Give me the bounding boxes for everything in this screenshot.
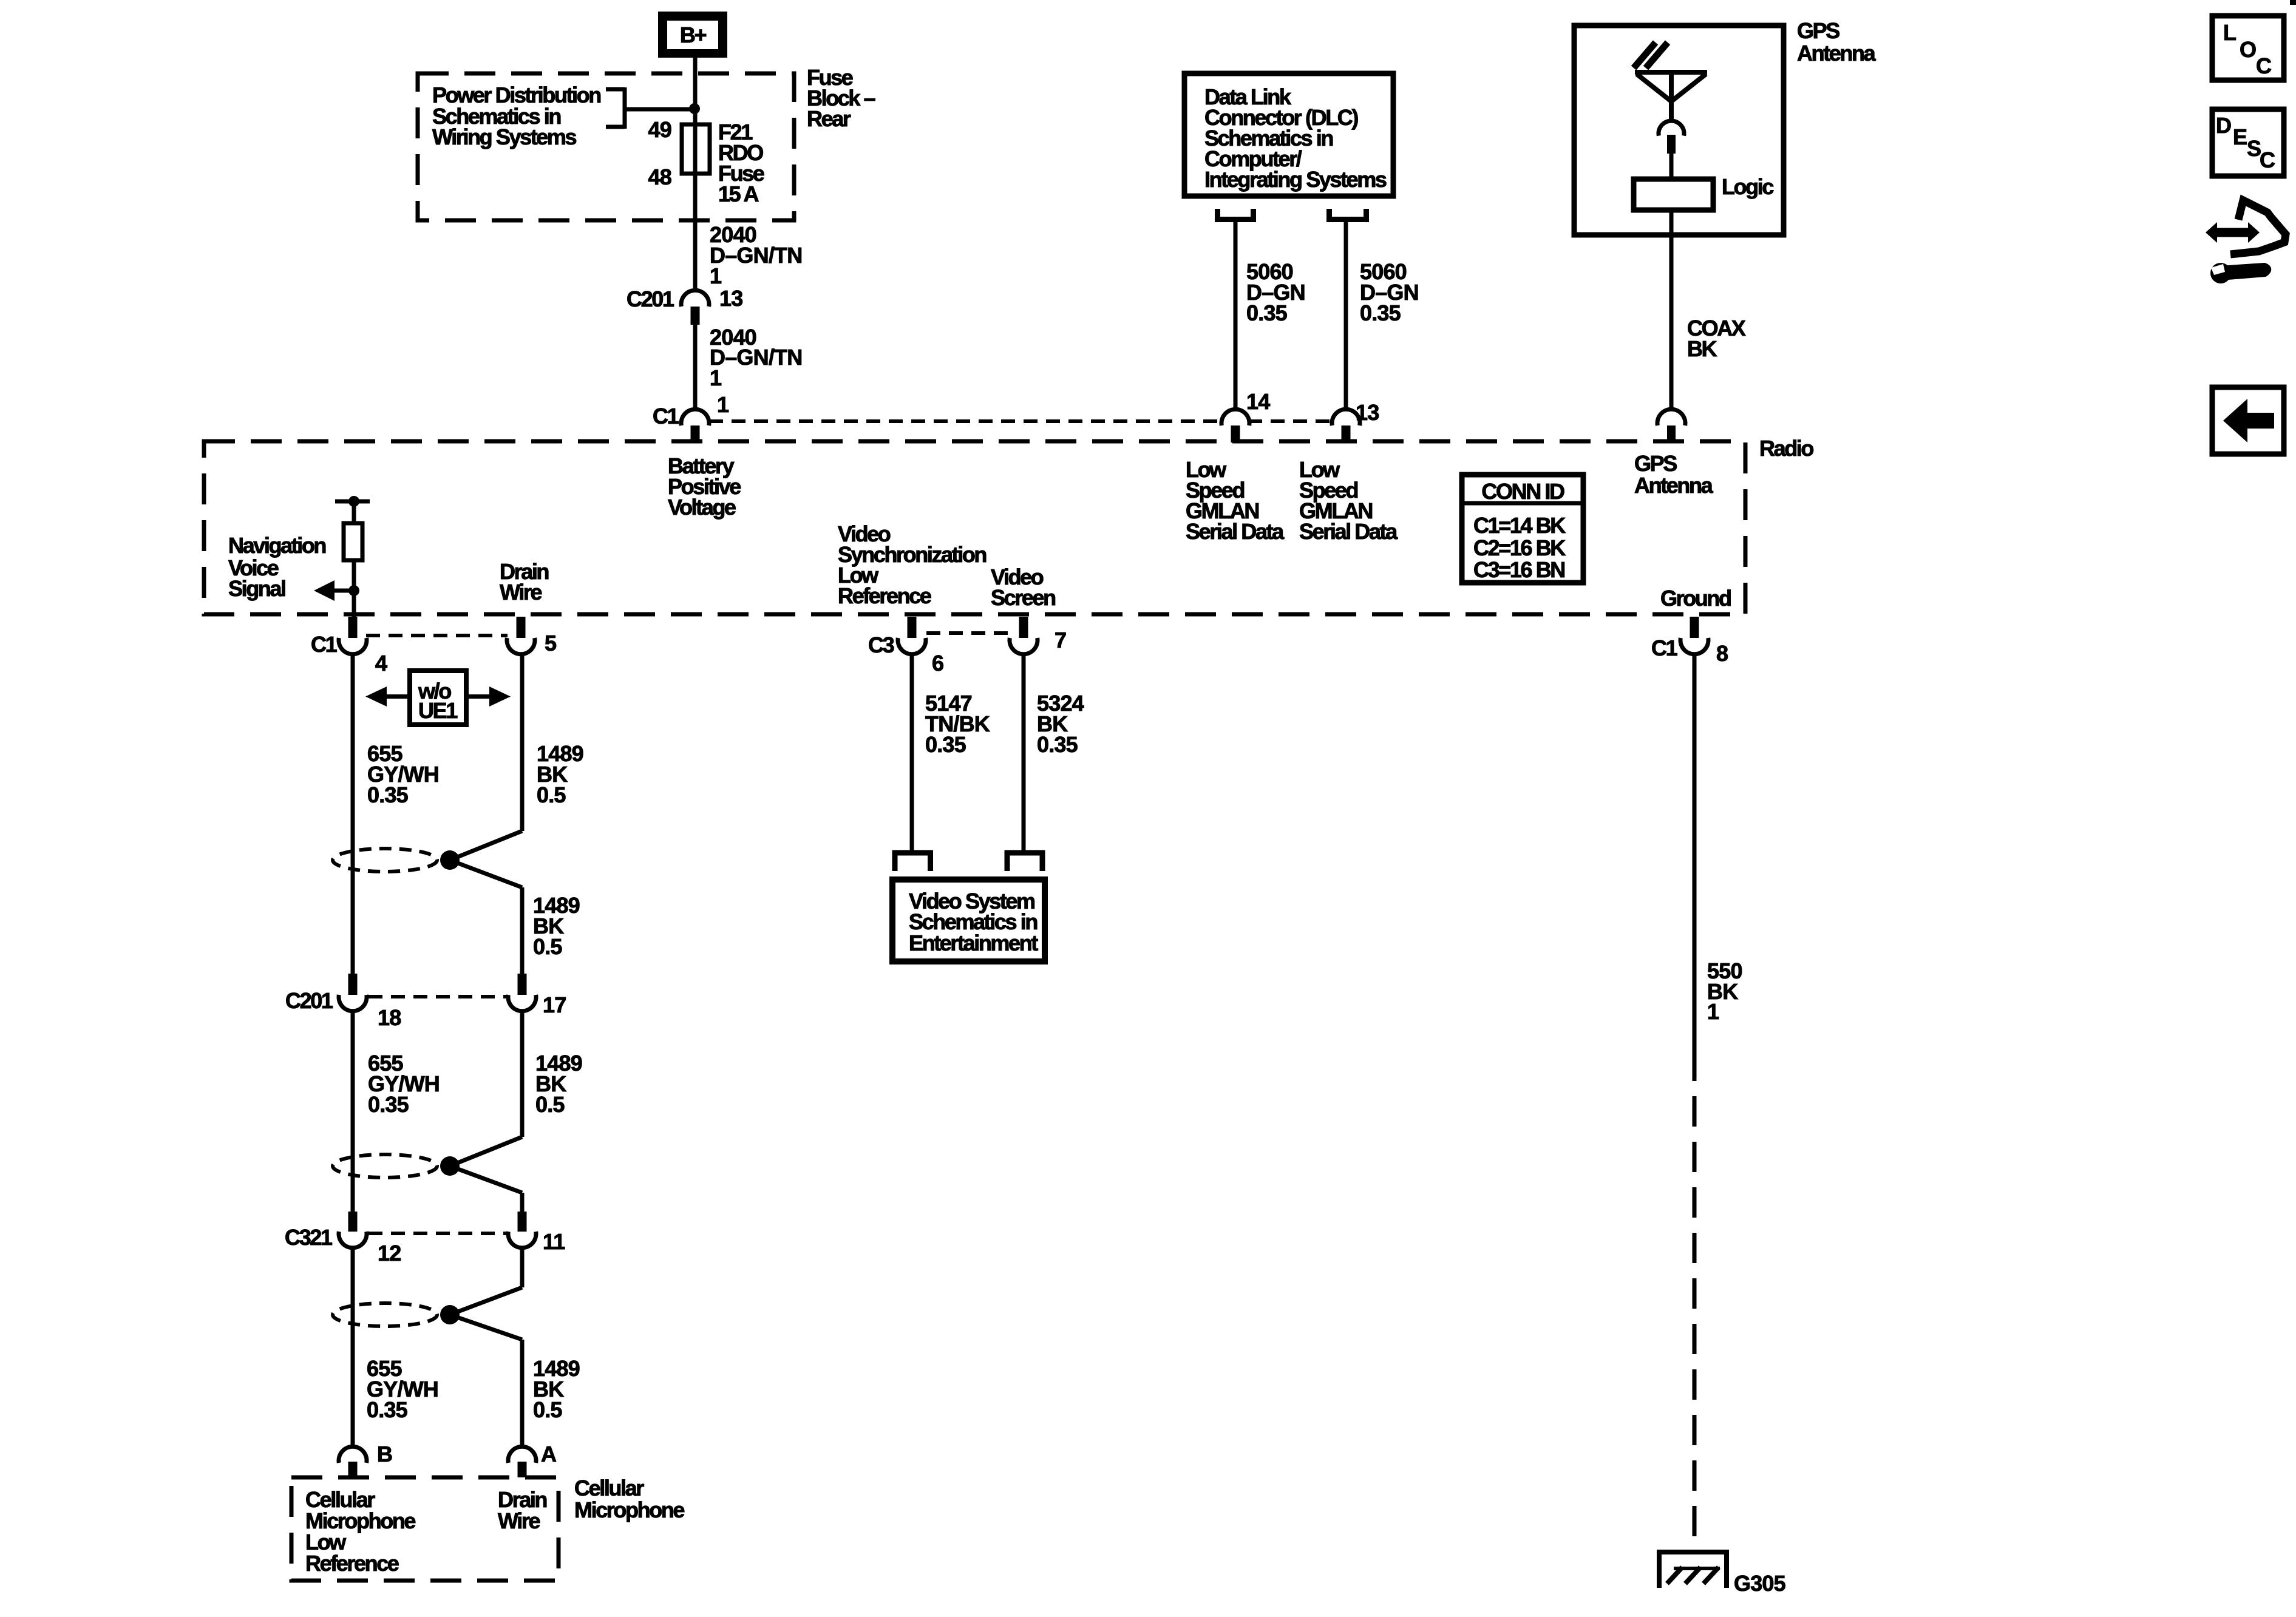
- svg-text:BK: BK: [1687, 336, 1717, 361]
- svg-text:12: 12: [378, 1241, 401, 1266]
- svg-text:11: 11: [543, 1229, 565, 1254]
- svg-text:0.5: 0.5: [533, 1397, 562, 1422]
- svg-text:S: S: [2247, 136, 2261, 161]
- svg-text:Serial Data: Serial Data: [1186, 519, 1285, 544]
- svg-text:D: D: [2216, 113, 2231, 138]
- svg-text:B: B: [377, 1442, 392, 1466]
- svg-text:0.35: 0.35: [368, 1092, 409, 1117]
- svg-text:D–GN/TN: D–GN/TN: [710, 243, 802, 268]
- svg-text:C: C: [2260, 147, 2275, 172]
- svg-text:C321: C321: [285, 1225, 333, 1250]
- svg-text:C: C: [2256, 53, 2272, 78]
- svg-text:C1=14 BK: C1=14 BK: [1473, 513, 1566, 538]
- svg-text:0.35: 0.35: [1246, 300, 1288, 325]
- svg-text:E: E: [2233, 124, 2247, 149]
- svg-text:O: O: [2240, 37, 2256, 62]
- svg-text:7: 7: [1055, 628, 1066, 653]
- svg-text:C201: C201: [627, 286, 674, 311]
- svg-text:Rear: Rear: [807, 106, 851, 131]
- svg-text:0.5: 0.5: [533, 934, 562, 959]
- svg-text:Entertainment: Entertainment: [909, 931, 1038, 955]
- svg-text:C3: C3: [868, 632, 894, 657]
- svg-text:Antenna: Antenna: [1797, 41, 1877, 66]
- svg-text:G305: G305: [1734, 1571, 1786, 1596]
- svg-text:Wire: Wire: [498, 1508, 540, 1533]
- svg-text:0.5: 0.5: [535, 1092, 565, 1117]
- svg-text:C201: C201: [285, 988, 333, 1013]
- svg-text:Navigation: Navigation: [228, 533, 325, 558]
- svg-text:8: 8: [1716, 641, 1728, 666]
- svg-text:Radio: Radio: [1759, 436, 1813, 461]
- svg-text:C1: C1: [311, 632, 338, 657]
- svg-text:Signal: Signal: [228, 576, 285, 601]
- svg-text:UE1: UE1: [418, 698, 458, 723]
- svg-text:L: L: [2223, 20, 2236, 45]
- svg-text:C2=16 BK: C2=16 BK: [1473, 535, 1566, 560]
- svg-text:GPS: GPS: [1797, 18, 1839, 43]
- svg-text:Logic: Logic: [1722, 174, 1773, 199]
- svg-text:Antenna: Antenna: [1634, 473, 1714, 498]
- svg-text:5: 5: [545, 631, 557, 656]
- svg-text:Microphone: Microphone: [574, 1497, 684, 1522]
- svg-text:48: 48: [648, 164, 671, 189]
- svg-text:CONN ID: CONN ID: [1481, 479, 1564, 504]
- svg-text:0.35: 0.35: [1037, 732, 1078, 757]
- svg-text:Cellular: Cellular: [574, 1476, 644, 1500]
- svg-text:13: 13: [1356, 400, 1379, 425]
- svg-text:D–GN/TN: D–GN/TN: [710, 345, 802, 370]
- svg-text:1: 1: [1707, 999, 1719, 1024]
- svg-text:C1: C1: [1651, 636, 1678, 660]
- svg-text:Wire: Wire: [500, 580, 542, 605]
- svg-text:Ground: Ground: [1660, 586, 1731, 611]
- svg-text:Serial Data: Serial Data: [1299, 519, 1398, 544]
- svg-text:Integrating Systems: Integrating Systems: [1204, 167, 1387, 192]
- svg-text:0.35: 0.35: [1360, 300, 1401, 325]
- svg-text:Wiring Systems: Wiring Systems: [432, 124, 577, 149]
- svg-text:14: 14: [1246, 389, 1270, 414]
- svg-text:6: 6: [932, 651, 943, 676]
- svg-text:17: 17: [543, 992, 566, 1017]
- svg-text:18: 18: [378, 1005, 401, 1030]
- svg-text:13: 13: [719, 286, 742, 311]
- svg-text:Reference: Reference: [838, 583, 931, 608]
- svg-text:Reference: Reference: [305, 1551, 399, 1576]
- svg-text:15 A: 15 A: [718, 181, 759, 206]
- svg-text:B+: B+: [680, 22, 707, 47]
- svg-text:0.5: 0.5: [537, 782, 566, 807]
- svg-text:GPS: GPS: [1634, 451, 1677, 476]
- svg-text:Voltage: Voltage: [668, 495, 736, 520]
- svg-text:1: 1: [710, 365, 722, 390]
- svg-text:C3=16 BN: C3=16 BN: [1473, 557, 1564, 582]
- svg-text:0.35: 0.35: [367, 782, 409, 807]
- svg-text:0.35: 0.35: [925, 732, 966, 757]
- svg-text:A: A: [541, 1442, 557, 1466]
- svg-text:C1: C1: [653, 404, 679, 429]
- svg-text:1: 1: [717, 392, 729, 417]
- svg-text:4: 4: [375, 651, 387, 676]
- svg-text:Screen: Screen: [991, 585, 1055, 610]
- svg-text:0.35: 0.35: [367, 1397, 408, 1422]
- svg-text:49: 49: [648, 117, 671, 142]
- svg-text:1: 1: [710, 263, 722, 288]
